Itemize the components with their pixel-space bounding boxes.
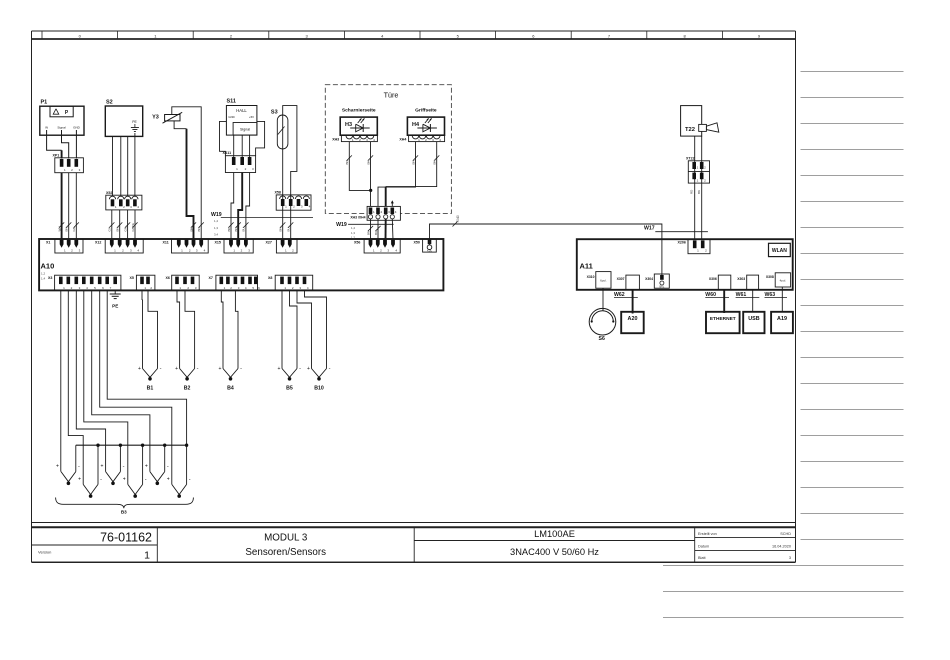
svg-text:B10: B10 xyxy=(314,386,324,392)
svg-text:GNYE: GNYE xyxy=(131,223,135,232)
svg-text:A10: A10 xyxy=(41,262,55,271)
svg-text:+: + xyxy=(78,476,81,482)
svg-text:Blatt: Blatt xyxy=(698,556,707,560)
svg-text:X15: X15 xyxy=(215,240,221,244)
svg-text:Erstellt von: Erstellt von xyxy=(698,532,717,536)
svg-text:+5V: +5V xyxy=(249,115,254,119)
svg-text:Signal: Signal xyxy=(57,126,66,130)
svg-text:+: + xyxy=(307,366,310,372)
svg-text:-: - xyxy=(189,476,191,482)
svg-text:Scharnierseite: Scharnierseite xyxy=(342,108,376,114)
svg-text:-: - xyxy=(167,464,169,470)
svg-text:X52: X52 xyxy=(106,191,112,195)
svg-text:MODUL 3: MODUL 3 xyxy=(264,532,308,543)
svg-text:XH3: XH3 xyxy=(332,138,339,142)
svg-text:Version: Version xyxy=(38,550,51,555)
svg-text:3: 3 xyxy=(789,556,791,560)
svg-text:-: - xyxy=(299,366,301,372)
svg-text:1,2: 1,2 xyxy=(351,235,355,239)
svg-text:PE: PE xyxy=(132,120,137,124)
svg-text:XP1: XP1 xyxy=(53,154,60,158)
svg-text:3NAC400 V 50/60 Hz: 3NAC400 V 50/60 Hz xyxy=(510,547,599,557)
svg-text:X12: X12 xyxy=(95,240,101,244)
svg-text:+: + xyxy=(175,366,178,372)
svg-text:WLAN: WLAN xyxy=(772,248,787,254)
svg-text:1,4: 1,4 xyxy=(351,226,355,230)
svg-text:X310: X310 xyxy=(587,275,595,279)
svg-text:1,4: 1,4 xyxy=(214,219,218,223)
svg-text:X27: X27 xyxy=(266,240,272,244)
svg-text:GND: GND xyxy=(228,115,234,119)
svg-text:1: 1 xyxy=(144,550,150,562)
svg-text:Signal: Signal xyxy=(240,128,250,132)
svg-text:W19: W19 xyxy=(336,222,347,228)
svg-text:X6: X6 xyxy=(166,276,170,280)
svg-text:H4: H4 xyxy=(412,122,420,128)
svg-text:1,3: 1,3 xyxy=(351,231,355,235)
svg-text:BK: BK xyxy=(189,227,193,231)
svg-text:Datum: Datum xyxy=(698,544,709,548)
svg-text:X304: X304 xyxy=(645,277,653,281)
svg-text:-: - xyxy=(145,476,147,482)
svg-text:+: + xyxy=(123,476,126,482)
svg-text:IN: IN xyxy=(45,126,48,130)
svg-text:+: + xyxy=(278,366,281,372)
svg-text:+: + xyxy=(167,476,170,482)
svg-text:BK: BK xyxy=(433,160,437,164)
svg-text:16.04.2020: 16.04.2020 xyxy=(772,544,791,548)
svg-text:GY: GY xyxy=(108,227,112,231)
svg-text:P1: P1 xyxy=(41,99,48,105)
svg-text:+: + xyxy=(138,366,141,372)
svg-text:HALL: HALL xyxy=(236,108,247,113)
svg-text:XH3 /XH4: XH3 /XH4 xyxy=(350,216,365,220)
svg-text:B5: B5 xyxy=(286,386,293,392)
svg-text:BN: BN xyxy=(345,160,349,164)
svg-text:X8: X8 xyxy=(268,276,272,280)
svg-text:LM100AE: LM100AE xyxy=(534,529,575,539)
svg-text:X206: X206 xyxy=(678,240,686,244)
svg-text:+: + xyxy=(145,464,148,470)
svg-text:BN: BN xyxy=(411,160,415,164)
svg-text:A11: A11 xyxy=(580,262,593,271)
svg-text:X56: X56 xyxy=(354,240,360,244)
svg-text:X58: X58 xyxy=(275,191,281,195)
svg-text:Türe: Türe xyxy=(384,90,399,99)
svg-text:Y3: Y3 xyxy=(152,115,159,121)
svg-text:BN: BN xyxy=(65,227,69,231)
svg-text:GND: GND xyxy=(73,126,81,130)
svg-text:USB: USB xyxy=(748,316,759,322)
svg-text:B4: B4 xyxy=(227,386,234,392)
svg-text:Sensoren/Sensors: Sensoren/Sensors xyxy=(245,547,326,558)
svg-text:BU: BU xyxy=(287,227,291,231)
svg-text:S6: S6 xyxy=(599,336,605,342)
svg-text:+: + xyxy=(56,464,59,470)
svg-text:B2: B2 xyxy=(184,386,191,392)
svg-text:BN: BN xyxy=(197,227,201,231)
svg-text:-: - xyxy=(160,366,162,372)
svg-text:BKL: BKL xyxy=(660,285,665,288)
svg-text:X11: X11 xyxy=(163,240,169,244)
svg-text:BU: BU xyxy=(242,227,246,231)
svg-text:A19: A19 xyxy=(777,316,787,322)
svg-text:X7: X7 xyxy=(209,276,213,280)
svg-text:X1: X1 xyxy=(46,240,50,244)
svg-text:1,2: 1,2 xyxy=(41,272,46,276)
svg-text:X3: X3 xyxy=(48,276,52,280)
svg-text:B1: B1 xyxy=(147,386,154,392)
svg-text:W17: W17 xyxy=(644,226,655,232)
svg-text:-: - xyxy=(329,366,331,372)
svg-text:BN: BN xyxy=(234,227,238,231)
svg-text:KDL: KDL xyxy=(427,248,433,252)
svg-text:BN: BN xyxy=(279,227,283,231)
svg-text:WH: WH xyxy=(57,227,61,232)
svg-text:GN: GN xyxy=(123,227,127,232)
svg-text:X50: X50 xyxy=(414,240,420,244)
svg-text:Griffseite: Griffseite xyxy=(415,108,437,114)
svg-text:7040: 7040 xyxy=(456,215,460,223)
svg-text:+: + xyxy=(219,366,222,372)
svg-text:W19: W19 xyxy=(211,212,222,218)
svg-text:S11: S11 xyxy=(227,99,236,105)
svg-text:1,4: 1,4 xyxy=(41,277,46,281)
svg-text:SCHD: SCHD xyxy=(780,532,791,536)
svg-text:BK: BK xyxy=(366,160,370,164)
svg-text:XH4: XH4 xyxy=(399,138,406,142)
svg-text:X5: X5 xyxy=(130,276,134,280)
svg-text:S3: S3 xyxy=(271,110,278,116)
svg-text:GN: GN xyxy=(72,227,76,232)
svg-text:X307: X307 xyxy=(617,277,625,281)
svg-text:X308: X308 xyxy=(766,275,774,279)
svg-text:XT22: XT22 xyxy=(686,156,695,160)
svg-text:ETHERNET: ETHERNET xyxy=(710,316,736,322)
svg-text:BN: BN xyxy=(116,227,120,231)
svg-text:3,4: 3,4 xyxy=(214,232,218,236)
svg-text:X306: X306 xyxy=(709,277,717,281)
svg-text:B3: B3 xyxy=(121,510,127,515)
svg-text:BK: BK xyxy=(227,227,231,231)
svg-text:-: - xyxy=(197,366,199,372)
svg-text:S2: S2 xyxy=(106,99,113,105)
svg-text:+: + xyxy=(101,464,104,470)
svg-text:A20: A20 xyxy=(628,316,638,322)
svg-text:4pol.: 4pol. xyxy=(780,279,787,283)
svg-text:-: - xyxy=(78,464,80,470)
svg-text:-: - xyxy=(123,464,125,470)
svg-text:BU: BU xyxy=(374,231,378,235)
svg-text:1,3: 1,3 xyxy=(214,226,218,230)
svg-text:6pol.: 6pol. xyxy=(600,279,607,283)
svg-text:76-01162: 76-01162 xyxy=(100,530,152,544)
svg-text:-: - xyxy=(240,366,242,372)
svg-text:XS11: XS11 xyxy=(223,151,232,155)
svg-text:T22: T22 xyxy=(685,127,695,133)
svg-text:-: - xyxy=(100,476,102,482)
svg-text:BK: BK xyxy=(697,190,701,194)
svg-text:BN: BN xyxy=(366,231,370,235)
svg-text:PE: PE xyxy=(112,304,118,309)
svg-text:H3: H3 xyxy=(345,122,352,128)
svg-text:X303: X303 xyxy=(737,277,745,281)
